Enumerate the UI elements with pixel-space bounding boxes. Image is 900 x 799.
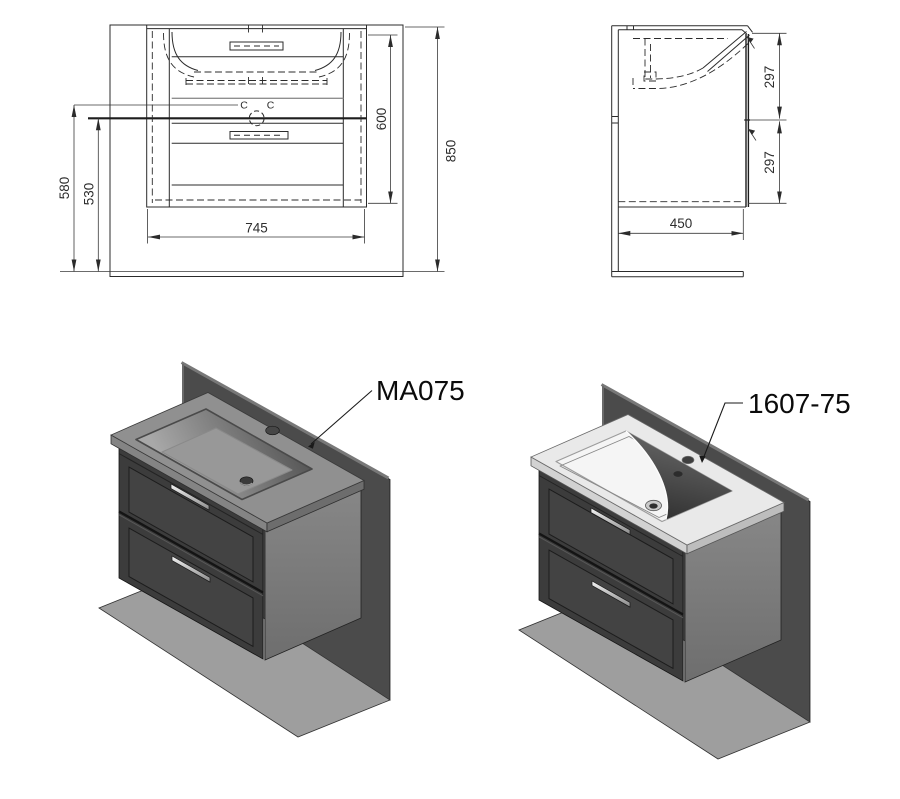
side-hidden-basin-lines (618, 39, 748, 202)
p1607-overflow-hole (673, 471, 682, 477)
side-view: 297 297 450 (612, 26, 787, 277)
side-structure-lines (612, 26, 753, 277)
front-view: C C 580 530 600 850 745 (57, 25, 459, 277)
front-cabinet-outline (147, 25, 367, 207)
iso-view-1607-75: 1607-75 (519, 385, 851, 760)
front-ext-850 (403, 27, 445, 272)
side-basin-edge-lines (703, 32, 750, 72)
ma075-product-label: MA075 (376, 375, 465, 406)
front-dim-580-label: 580 (57, 177, 72, 200)
front-c-mark-left: C (240, 100, 248, 112)
side-dim-450-label: 450 (670, 216, 693, 231)
front-dim-850-label: 850 (444, 140, 459, 163)
p1607-faucet-hole (682, 456, 694, 464)
side-leader-arrow-bottom-head (749, 129, 756, 135)
front-basin-arcs (172, 32, 341, 71)
side-dim-297-top-label: 297 (762, 66, 777, 89)
p1607-product-label: 1607-75 (748, 388, 851, 419)
front-dim-530-label: 530 (82, 183, 97, 206)
iso-view-ma075: MA075 (99, 363, 465, 738)
front-dim-600-label: 600 (374, 108, 389, 131)
front-hidden-basin-lines (152, 26, 361, 204)
side-dim-297-bottom-label: 297 (762, 151, 777, 174)
p1607-drain-hole (649, 503, 657, 508)
ma075-faucet-hole (266, 426, 280, 435)
front-back-panel-outline (110, 25, 403, 277)
ma075-leader-line (311, 391, 372, 445)
front-dim-745-label: 745 (245, 221, 268, 236)
front-c-mark-right: C (267, 100, 275, 112)
drawing-canvas: C C 580 530 600 850 745 297 297 (0, 0, 900, 799)
side-ext-297 (744, 33, 787, 203)
vanity-technical-drawing: C C 580 530 600 850 745 297 297 (0, 0, 900, 799)
